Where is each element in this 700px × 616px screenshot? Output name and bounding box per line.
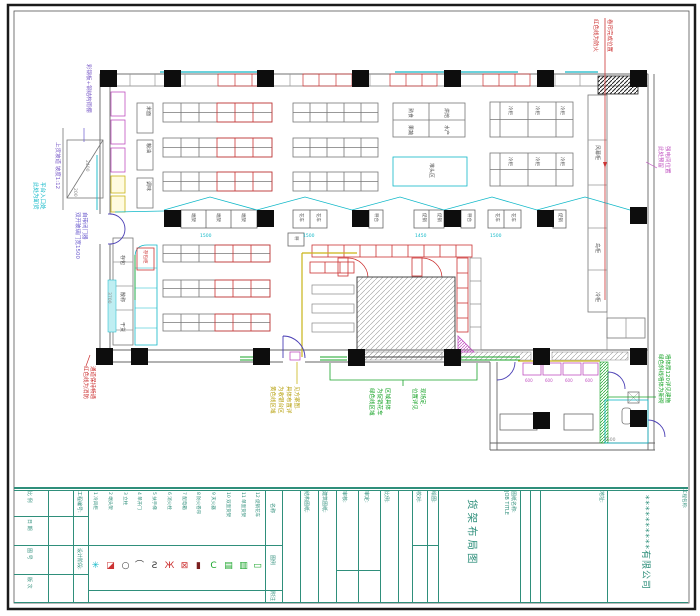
label-spice: 调味 bbox=[145, 181, 152, 191]
dim-1500: 1500 bbox=[490, 233, 502, 239]
dim-600: 600 bbox=[565, 378, 573, 383]
titleblock-bottom-border bbox=[14, 602, 688, 603]
project-name-label: 工程名称: bbox=[680, 489, 686, 529]
legend-column-icon: ○ bbox=[118, 547, 133, 585]
note-promo-4: 位置详见 bbox=[411, 388, 419, 411]
label-produce: 果蔬 bbox=[407, 125, 414, 135]
label-scale: 秤台 bbox=[373, 213, 380, 222]
label-cooler: 冷柜 bbox=[507, 106, 514, 115]
note-new-wall-2: 墙体厚120详见建施 bbox=[664, 354, 672, 403]
note-power-room-1: 此处预留 bbox=[657, 146, 665, 169]
note-promo-2: 为促销花车 bbox=[376, 388, 384, 416]
annex-rooms bbox=[500, 361, 648, 443]
address-label: 地址: bbox=[598, 491, 604, 531]
legend-extinguisher-icon: C bbox=[206, 547, 221, 585]
label-cooler-wall: 冷柜 bbox=[594, 292, 601, 302]
label-endcap: 端架 bbox=[215, 213, 222, 222]
checkout-zone bbox=[290, 245, 481, 360]
dim-1500: 1500 bbox=[303, 233, 315, 239]
legend-door-icon: ⌒ bbox=[132, 547, 147, 585]
label-promo: 促销 bbox=[557, 213, 564, 222]
label-bakery: 烘焙 bbox=[443, 108, 450, 118]
label-scale: 秤台 bbox=[466, 213, 473, 222]
fresh-tables bbox=[393, 102, 573, 186]
dwg-no-label: 图 号 bbox=[26, 548, 32, 572]
gondolas-lower-left bbox=[163, 245, 270, 331]
lower-left-racks bbox=[108, 238, 157, 345]
dimensions: 200 2400 3700 7500 1500 1500 1450 1500 6… bbox=[72, 160, 616, 443]
job-no-label: 工程编号: bbox=[76, 491, 82, 541]
drawing-name-label-en: JOB TITLE bbox=[503, 491, 509, 561]
dim-1450: 1450 bbox=[415, 233, 427, 239]
note-cashier-3: 具体布置详 bbox=[285, 386, 293, 414]
phase-label: 设计阶段: bbox=[76, 548, 82, 598]
label-lockerbox: 存包柜 bbox=[142, 250, 149, 264]
company-name: **********有限公司 bbox=[640, 495, 650, 599]
gondolas-upper-right bbox=[293, 103, 378, 191]
label-cooler: 冷柜 bbox=[559, 106, 566, 115]
note-fire-shutter-1: 红色线为防火 bbox=[592, 19, 600, 53]
cyan-accent-lines bbox=[97, 72, 598, 210]
dim-600: 600 bbox=[545, 378, 553, 383]
note-door-1: 双开玻璃门宽1500 bbox=[74, 212, 82, 259]
date-label: 日 期 bbox=[26, 519, 32, 543]
label-aircurtain: 风幕柜 bbox=[594, 145, 601, 160]
note-promo-1: 绿色线区域 bbox=[368, 388, 376, 416]
scale2-label: 比例: bbox=[383, 491, 389, 551]
titleblock-top-border-inner bbox=[14, 490, 688, 491]
legend-row-note: 附注 bbox=[269, 591, 275, 601]
label-pile: 堆头区 bbox=[428, 163, 435, 178]
legend-item-label: 4 单开门 bbox=[135, 492, 141, 542]
legend-item-label: 3 立柱 bbox=[121, 492, 127, 542]
label-dry: 干货 bbox=[119, 322, 126, 332]
small-shelf-boxes bbox=[137, 103, 153, 208]
label-promo: 促销 bbox=[436, 213, 443, 222]
check-label: 审核: bbox=[341, 491, 347, 551]
red-marks bbox=[170, 77, 551, 225]
legend-item-label: 5 扶手梯 bbox=[150, 492, 156, 542]
legend-item-label: 10 双面货架 bbox=[224, 492, 230, 542]
drawing-sheet: 彩钢板+钢结构雨棚 上货坡道 坡度1:12 此处为卸货 平台入口处 双开玻璃门宽… bbox=[0, 0, 700, 616]
legend-item-label: 11 单面货架 bbox=[239, 492, 245, 542]
legend-item-label: 8 防火卷帘 bbox=[194, 492, 200, 542]
note-cashier-4: 见方案图. bbox=[293, 386, 301, 410]
label-locker: 存包 bbox=[119, 255, 126, 265]
label-cart: 花车 bbox=[298, 213, 305, 222]
proof-label: 校对: bbox=[415, 491, 421, 541]
note-door-2: 自带闭门器 bbox=[81, 212, 89, 240]
legend-item-label: 2 端头架 bbox=[106, 492, 112, 542]
legend-hydrant-icon: Ж bbox=[162, 547, 177, 585]
label-promo: 促销 bbox=[421, 213, 428, 222]
note-unload-1: 此处为卸货 bbox=[32, 182, 40, 210]
draw-label: 绘图: bbox=[430, 491, 436, 541]
approve-label: 审定: bbox=[363, 491, 369, 551]
legend-row-symbol: 图例 bbox=[269, 555, 275, 565]
note-cashier-2: 为收银台区 bbox=[277, 386, 285, 414]
legend-escalator-icon: Ƨ bbox=[147, 547, 162, 585]
label-cooler: 冷柜 bbox=[534, 106, 541, 115]
legend-item-label: 9 灭火器 bbox=[209, 492, 215, 542]
note-fire-shutter-2: 卷帘完成位置 bbox=[606, 19, 614, 53]
legend-shelf-double-icon: ▤ bbox=[221, 547, 236, 585]
label-seafood: 水产 bbox=[443, 125, 450, 135]
dim-600: 600 bbox=[585, 378, 593, 383]
rev-label: 版 次 bbox=[26, 577, 32, 601]
legend-item-label: 7 配电箱 bbox=[180, 492, 186, 542]
note-promo-5: 现场定. bbox=[419, 388, 427, 407]
drawing-title: 货架布局图 bbox=[466, 499, 478, 599]
legend-shelf-single-icon: ▥ bbox=[236, 547, 251, 585]
label-cooler: 冷柜 bbox=[559, 157, 566, 166]
legend-row-name: 名称 bbox=[269, 503, 275, 513]
note-canopy: 彩钢板+钢结构雨棚 bbox=[85, 64, 93, 113]
label-cart: 花车 bbox=[510, 213, 517, 222]
label-bulk: 散称 bbox=[119, 292, 126, 302]
note-cashier-1: 黄色线区域 bbox=[269, 386, 277, 414]
titleblock-top-border bbox=[14, 487, 688, 489]
structure-sheet-label: 结构图纸: bbox=[303, 491, 309, 551]
dim-2400: 2400 bbox=[84, 160, 90, 172]
label-island: 岛柜 bbox=[594, 243, 601, 253]
dim-3700: 3700 bbox=[106, 292, 112, 304]
dim-200: 200 bbox=[72, 188, 78, 197]
note-fire-exit-2: 通道保持畅通 bbox=[89, 366, 97, 400]
label-cart: 花车 bbox=[315, 213, 322, 222]
note-new-wall-1: 绿色斜线墙体为新砌 bbox=[657, 354, 665, 404]
label-cart: 花车 bbox=[494, 213, 501, 222]
note-fire-exit-1: 红色线为消防 bbox=[82, 366, 90, 400]
note-power-room-2: 强电间位置 bbox=[664, 146, 672, 174]
note-ramp: 上货坡道 坡度1:12 bbox=[54, 142, 62, 189]
note-unload-2: 平台入口处 bbox=[39, 182, 47, 210]
legend-panel-icon: ⊠ bbox=[177, 547, 192, 585]
drawing-name-label: 图纸名称: bbox=[510, 491, 516, 561]
note-promo-3: 区域具体 bbox=[384, 388, 392, 411]
legend-item-label: 6 消火栓 bbox=[165, 492, 171, 542]
label-cooler: 冷柜 bbox=[534, 157, 541, 166]
legend-endcap-icon: ◪ bbox=[103, 547, 118, 585]
legend-freezer-icon: ✳ bbox=[88, 547, 103, 585]
legend-item-label: 12 促销花车 bbox=[253, 492, 259, 542]
label-rice: 米面 bbox=[145, 106, 152, 116]
legend-cart-icon: ▭ bbox=[250, 547, 265, 585]
label-cooler: 冷柜 bbox=[507, 157, 514, 166]
legend-item-label: 1 冷风柜 bbox=[91, 492, 97, 542]
gondolas-upper-left bbox=[163, 103, 272, 191]
dim-600: 600 bbox=[525, 378, 533, 383]
label-endcap: 端架 bbox=[190, 213, 197, 222]
label-endcap: 端架 bbox=[240, 213, 247, 222]
dim-1500: 1500 bbox=[200, 233, 212, 239]
label-scale-small: 秤 bbox=[293, 236, 300, 241]
left-wall-fixtures bbox=[111, 92, 125, 212]
scale-label: 比 例 bbox=[26, 491, 32, 515]
legend-shutter-icon: ▮ bbox=[191, 547, 206, 585]
label-deli: 熟食 bbox=[407, 108, 414, 118]
dim-7500: 7500 bbox=[604, 437, 616, 443]
title-block: 比 例 日 期 图 号 版 次 工程编号: 设计阶段: 1 冷风柜 2 端头架 … bbox=[14, 487, 688, 603]
label-oil: 粮油 bbox=[145, 143, 152, 153]
arch-sheet-label: 建筑图纸: bbox=[321, 491, 327, 551]
